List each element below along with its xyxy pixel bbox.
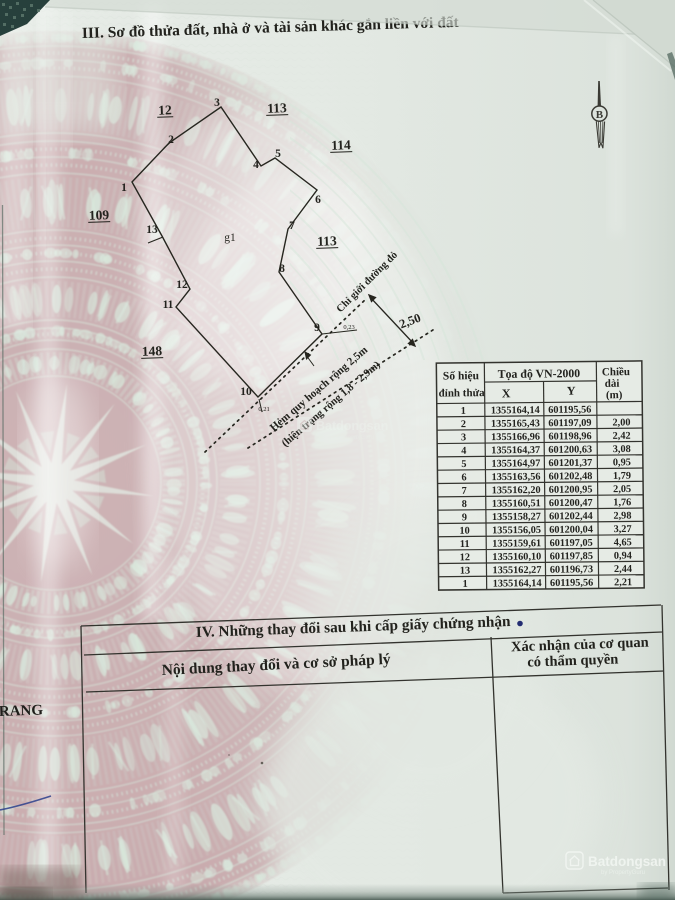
svg-text:601195,56: 601195,56 — [550, 578, 593, 589]
svg-text:2: 2 — [461, 419, 466, 430]
svg-text:0,95: 0,95 — [613, 457, 631, 468]
svg-text:13: 13 — [146, 224, 158, 236]
svg-text:113: 113 — [267, 100, 287, 116]
svg-text:Tọa độ VN-2000: Tọa độ VN-2000 — [498, 366, 581, 381]
svg-text:601200,04: 601200,04 — [549, 524, 593, 535]
svg-text:1355165,43: 1355165,43 — [491, 418, 540, 430]
svg-text:13: 13 — [460, 566, 470, 577]
svg-text:Batdongsan: Batdongsan — [588, 854, 666, 869]
svg-text:601197,09: 601197,09 — [548, 418, 591, 429]
svg-text:109: 109 — [89, 207, 110, 223]
svg-text:10: 10 — [459, 526, 469, 537]
svg-text:114: 114 — [331, 137, 351, 153]
svg-text:Y: Y — [567, 384, 576, 398]
svg-text:601198,96: 601198,96 — [548, 431, 591, 442]
svg-text:9: 9 — [314, 322, 320, 334]
svg-text:601200,95: 601200,95 — [549, 484, 593, 495]
svg-text:1: 1 — [461, 406, 466, 417]
svg-text:Số hiệu: Số hiệu — [443, 369, 480, 382]
svg-text:0,21: 0,21 — [258, 406, 269, 413]
svg-text:601197,05: 601197,05 — [550, 538, 593, 549]
svg-text:có thẩm quyền: có thẩm quyền — [527, 651, 619, 670]
svg-text:1355160,10: 1355160,10 — [492, 551, 541, 563]
svg-text:9: 9 — [462, 512, 467, 523]
svg-text:đỉnh thửa: đỉnh thửa — [439, 387, 486, 399]
svg-text:1355163,56: 1355163,56 — [492, 472, 541, 484]
svg-text:1355160,51: 1355160,51 — [492, 498, 541, 510]
svg-text:7: 7 — [289, 220, 295, 232]
svg-text:1355164,97: 1355164,97 — [491, 458, 540, 470]
svg-text:148: 148 — [142, 343, 163, 359]
svg-text:by PropertyGuru: by PropertyGuru — [601, 870, 645, 876]
svg-text:1355158,27: 1355158,27 — [492, 511, 541, 523]
svg-text:1355164,37: 1355164,37 — [491, 445, 540, 457]
svg-text:4,65: 4,65 — [614, 537, 632, 548]
svg-text:601196,73: 601196,73 — [550, 564, 593, 575]
svg-text:1355166,96: 1355166,96 — [491, 432, 540, 444]
svg-text:1355164,14: 1355164,14 — [493, 578, 542, 590]
svg-text:2,44: 2,44 — [614, 564, 632, 575]
svg-text:10: 10 — [240, 386, 252, 398]
svg-text:11: 11 — [460, 539, 470, 550]
svg-text:RANG: RANG — [0, 702, 44, 720]
svg-text:11: 11 — [163, 299, 174, 311]
svg-text:7: 7 — [462, 486, 467, 497]
svg-text:by PropertyGuru: by PropertyGuru — [330, 435, 374, 441]
svg-text:2,00: 2,00 — [612, 417, 630, 428]
svg-text:2,21: 2,21 — [614, 577, 632, 588]
svg-text:5: 5 — [275, 148, 281, 160]
svg-text:4: 4 — [461, 446, 466, 457]
svg-text:12: 12 — [176, 279, 188, 291]
svg-text:601195,56: 601195,56 — [548, 404, 591, 415]
svg-text:Batdongsan: Batdongsan — [316, 419, 388, 433]
svg-text:3,08: 3,08 — [613, 444, 631, 455]
svg-text:0,94: 0,94 — [614, 551, 632, 562]
svg-text:8: 8 — [462, 499, 467, 510]
svg-text:4: 4 — [253, 159, 259, 171]
svg-text:1355156,05: 1355156,05 — [492, 525, 541, 537]
svg-text:12: 12 — [460, 552, 470, 563]
svg-text:601202,48: 601202,48 — [549, 471, 593, 482]
svg-text:1: 1 — [121, 182, 127, 194]
svg-text:2,42: 2,42 — [613, 431, 631, 442]
svg-text:3,27: 3,27 — [614, 524, 632, 535]
svg-text:601202,44: 601202,44 — [549, 511, 593, 522]
svg-text:2,98: 2,98 — [613, 511, 631, 522]
svg-text:1355162,20: 1355162,20 — [492, 485, 541, 497]
svg-text:113: 113 — [317, 233, 337, 249]
svg-text:2,05: 2,05 — [613, 484, 631, 495]
svg-text:601197,85: 601197,85 — [550, 551, 593, 562]
svg-text:1355164,14: 1355164,14 — [491, 405, 540, 417]
svg-text:601200,47: 601200,47 — [549, 498, 593, 509]
svg-text:3: 3 — [461, 432, 466, 443]
svg-text:6: 6 — [461, 472, 466, 483]
svg-text:2: 2 — [168, 134, 174, 146]
svg-text:B: B — [596, 109, 604, 121]
svg-text:601200,63: 601200,63 — [548, 444, 592, 455]
svg-text:1,76: 1,76 — [613, 497, 631, 508]
svg-text:1: 1 — [463, 579, 468, 590]
svg-text:12: 12 — [158, 102, 172, 117]
svg-text:1,79: 1,79 — [613, 471, 631, 482]
svg-text:X: X — [502, 386, 511, 400]
svg-text:g1: g1 — [224, 232, 236, 244]
svg-text:8: 8 — [279, 263, 285, 275]
svg-text:1355159,61: 1355159,61 — [492, 538, 541, 550]
svg-text:(m): (m) — [606, 389, 623, 401]
svg-text:601201,37: 601201,37 — [548, 458, 592, 469]
svg-text:3: 3 — [214, 97, 220, 109]
svg-text:1355162,27: 1355162,27 — [492, 565, 541, 577]
svg-text:Chiều: Chiều — [602, 366, 630, 378]
svg-text:0,23: 0,23 — [343, 324, 354, 331]
svg-text:dài: dài — [605, 378, 620, 390]
svg-text:5: 5 — [461, 459, 466, 470]
svg-text:6: 6 — [315, 194, 321, 206]
